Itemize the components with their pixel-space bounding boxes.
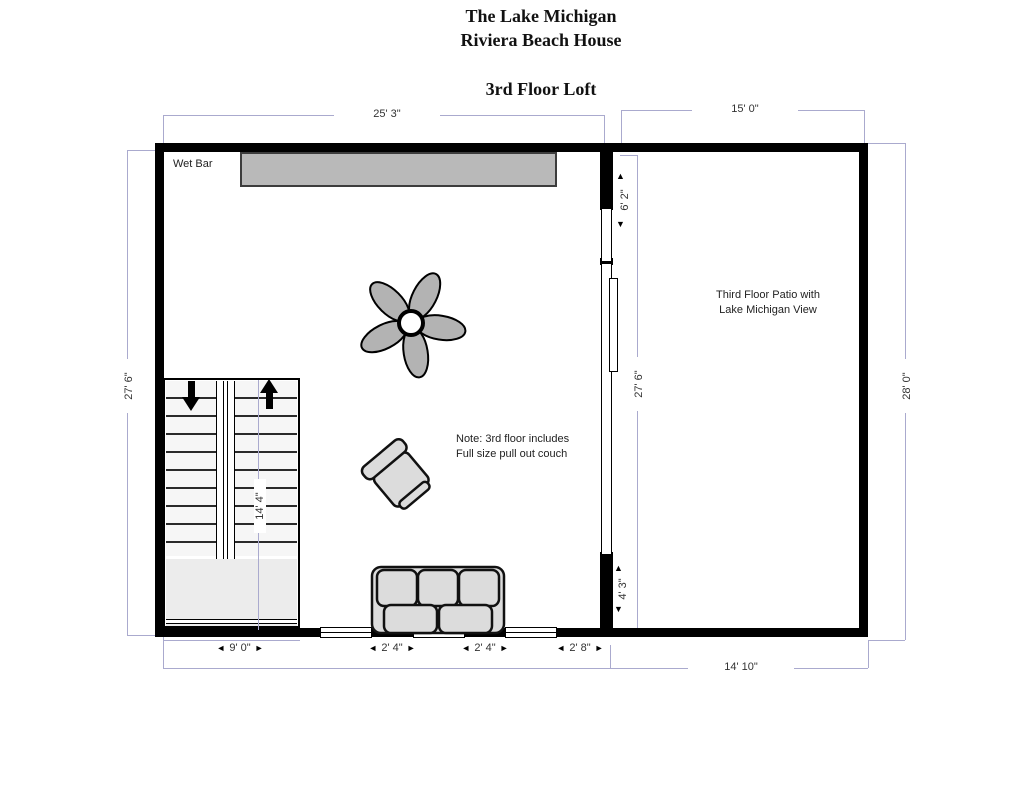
patio-label: Third Floor Patio with Lake Michigan Vie… [668, 288, 868, 318]
sliding-door-panel [609, 278, 618, 372]
dim-patio-height-inner: 27' 6" [633, 357, 645, 411]
dim-window1-width: ◄ 2' 4" ► [342, 642, 442, 654]
dim-loft-height-left: 27' 6" [123, 359, 135, 413]
page-title-line2: Riviera Beach House [241, 30, 841, 51]
stairs-down-arrow-icon [182, 397, 200, 411]
stair-rail-left [216, 381, 224, 562]
dim-line-under-stairs [163, 640, 300, 641]
dim-text: 9' 0" [229, 642, 250, 654]
dim-patio-width-bottom: 14' 10" [688, 661, 794, 673]
dim-divider-lower-wall: 4' 3" [617, 569, 629, 609]
divider-wall-upper [600, 143, 613, 210]
dim-tick [621, 110, 622, 143]
window-1 [320, 627, 372, 638]
stairs-up-arrow-shaft [266, 393, 273, 409]
ceiling-fan-icon [355, 268, 467, 380]
dim-stairs-width-bottom: ◄ 9' 0" ► [190, 642, 290, 654]
patio-label-line1: Third Floor Patio with [668, 288, 868, 303]
page-title-line1: The Lake Michigan [241, 6, 841, 27]
wet-bar-label: Wet Bar [173, 157, 213, 172]
right-wall [859, 143, 868, 637]
arrow-left-icon: ◄ [368, 643, 377, 654]
note-text: Note: 3rd floor includes Full size pull … [456, 432, 569, 462]
window-3 [505, 627, 557, 638]
arrow-right-icon: ► [595, 643, 604, 654]
dim-stairs-run: 14' 4" [254, 479, 266, 533]
patio-label-line2: Lake Michigan View [668, 303, 868, 318]
dim-patio-width-top: 15' 0" [692, 103, 798, 115]
dim-text: 2' 4" [474, 642, 495, 654]
couch-icon [370, 565, 506, 637]
dim-tick [620, 155, 637, 156]
dim-tick [868, 143, 905, 144]
arrow-right-icon: ► [407, 643, 416, 654]
arrow-left-icon: ◄ [216, 643, 225, 654]
dim-tick [163, 637, 164, 668]
dim-text: 2' 4" [381, 642, 402, 654]
dim-patio-height-right: 28' 0" [901, 359, 913, 413]
dim-window3-width: ◄ 2' 8" ► [530, 642, 630, 654]
dim-text: 2' 8" [569, 642, 590, 654]
wet-bar-counter [240, 152, 557, 187]
floor-plan-page: The Lake Michigan Riviera Beach House 3r… [0, 0, 1024, 791]
dim-window2-width: ◄ 2' 4" ► [435, 642, 535, 654]
landing-step-edge [166, 619, 297, 624]
arrow-down-icon: ▼ [614, 604, 623, 614]
dim-tick [864, 110, 865, 143]
top-wall [155, 143, 868, 152]
stair-landing [166, 559, 297, 626]
arrow-right-icon: ► [500, 643, 509, 654]
stair-rail-right [227, 381, 235, 562]
divider-window [601, 208, 612, 262]
dim-tick [868, 640, 869, 668]
arrow-right-icon: ► [255, 643, 264, 654]
dim-tick [127, 150, 155, 151]
dim-tick [127, 635, 155, 636]
stairs-up-arrow-icon [260, 379, 278, 393]
arrow-left-icon: ◄ [461, 643, 470, 654]
stairs-down-arrow-shaft [188, 381, 195, 397]
floor-label: 3rd Floor Loft [241, 79, 841, 100]
dim-tick [868, 640, 905, 641]
dim-tick [163, 115, 164, 143]
note-line2: Full size pull out couch [456, 447, 569, 462]
arrow-left-icon: ◄ [556, 643, 565, 654]
arrow-down-icon: ▼ [616, 219, 625, 229]
divider-wall-lower [600, 552, 613, 637]
dim-loft-width-top: 25' 3" [334, 108, 440, 120]
note-line1: Note: 3rd floor includes [456, 432, 569, 447]
dim-divider-window: 6' 2" [619, 180, 631, 220]
dim-tick [604, 115, 605, 143]
armchair-icon [352, 430, 448, 526]
